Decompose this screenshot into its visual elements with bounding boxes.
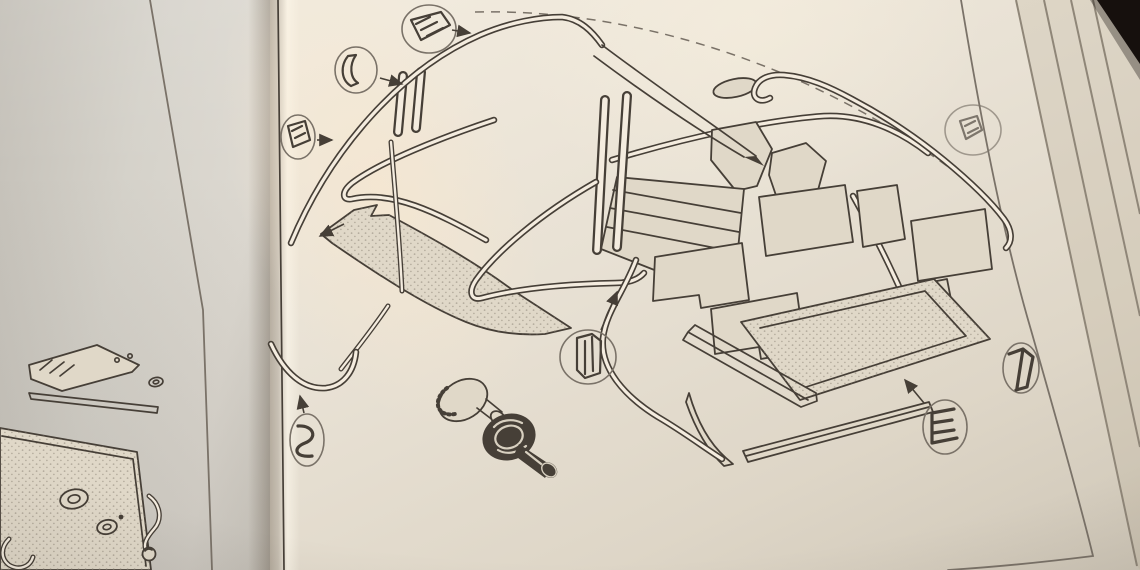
photo-vignette: [0, 0, 1140, 570]
book-photo: [0, 0, 1140, 570]
